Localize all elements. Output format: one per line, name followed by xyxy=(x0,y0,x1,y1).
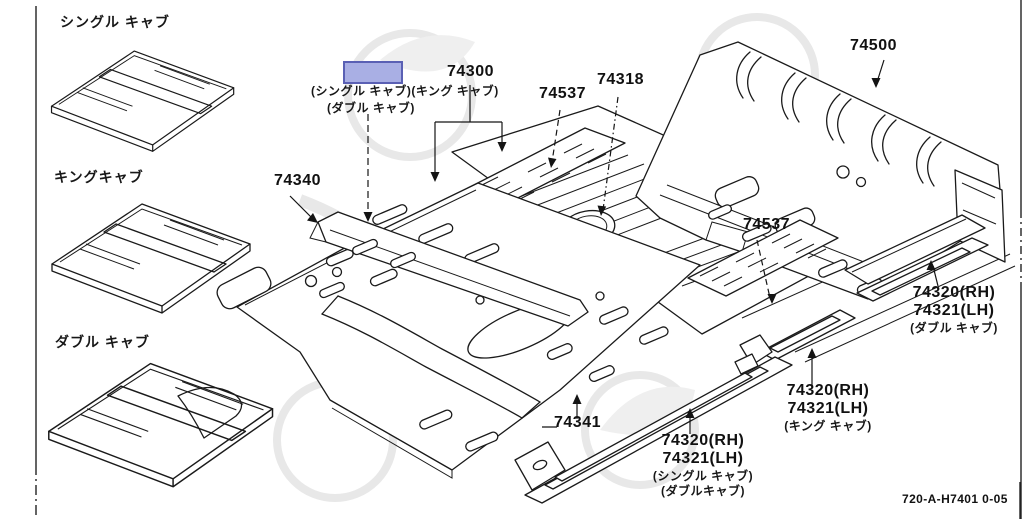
part-number-74320-rh-mid[interactable]: 74320(RH) xyxy=(770,382,886,400)
part-number-74537-a[interactable]: 74537 xyxy=(539,85,586,103)
callout-group-sill-bottom: 74320(RH) 74321(LH) (シングル キャブ) (ダブルキャブ) xyxy=(637,432,769,499)
callout-group-sill-right: 74320(RH) 74321(LH) (ダブル キャブ) xyxy=(896,284,1012,336)
highlighted-callout-box[interactable] xyxy=(343,61,403,84)
double-cab-panel-drawing xyxy=(49,364,273,487)
part-number-74320-rh-right[interactable]: 74320(RH) xyxy=(896,284,1012,302)
callout-74300-note-1: (シングル キャブ)(キング キャブ) xyxy=(311,85,499,98)
single-cab-panel-drawing xyxy=(52,51,234,151)
part-number-74537-b[interactable]: 74537 xyxy=(743,216,790,234)
variant-label-single-cab: シングル キャブ xyxy=(60,15,170,30)
part-number-74321-lh-right[interactable]: 74321(LH) xyxy=(896,302,1012,320)
part-number-74341[interactable]: 74341 xyxy=(554,414,601,432)
sill-bottom-variant-note-2: (ダブルキャブ) xyxy=(637,484,769,499)
drawing-reference-code: 720-A-H7401 0-05 xyxy=(902,493,1008,506)
part-number-74321-lh-mid[interactable]: 74321(LH) xyxy=(770,400,886,418)
parts-diagram-page: シングル キャブ キングキャブ ダブル キャブ (シングル キャブ)(キング キ… xyxy=(0,0,1024,519)
part-number-74321-lh-bottom[interactable]: 74321(LH) xyxy=(637,450,769,468)
part-number-74500[interactable]: 74500 xyxy=(850,37,897,55)
part-number-74340[interactable]: 74340 xyxy=(274,172,321,190)
sill-right-variant-note: (ダブル キャブ) xyxy=(896,321,1012,336)
diagram-canvas xyxy=(0,0,1024,519)
part-number-74320-rh-bottom[interactable]: 74320(RH) xyxy=(637,432,769,450)
variant-label-double-cab: ダブル キャブ xyxy=(55,335,150,350)
callout-74300-note-2: (ダブル キャブ) xyxy=(327,102,415,115)
variant-label-king-cab: キングキャブ xyxy=(54,170,144,185)
sill-strip-mid-drawing xyxy=(740,310,855,365)
sill-bottom-variant-note-1: (シングル キャブ) xyxy=(637,469,769,484)
sill-mid-variant-note: (キング キャブ) xyxy=(770,419,886,434)
part-number-74318[interactable]: 74318 xyxy=(597,71,644,89)
part-number-74300[interactable]: 74300 xyxy=(447,63,494,81)
callout-group-sill-mid: 74320(RH) 74321(LH) (キング キャブ) xyxy=(770,382,886,434)
